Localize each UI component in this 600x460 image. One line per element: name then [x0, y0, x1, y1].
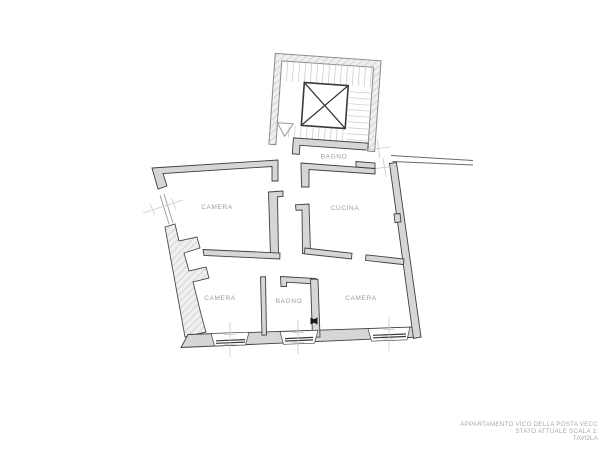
room-label-camera-bottom-right: CAMERA	[345, 295, 376, 302]
room-label-bagno-bottom: BAGNO	[276, 298, 302, 305]
wall-cucina-bottom-a	[304, 248, 352, 259]
room-label-cucina: CUCINA	[331, 205, 360, 212]
window-left-centerline	[143, 198, 183, 215]
wall-bagno-right	[311, 279, 321, 337]
wall-cucina-left	[296, 204, 311, 254]
interior-walls	[203, 162, 404, 338]
wall-bagno-left	[261, 277, 267, 336]
title-block: APPARTAMENTO VICO DELLA POSTA VECC STATO…	[460, 421, 598, 442]
wall-cucina-bottom-b	[366, 255, 405, 265]
room-label-bagno-top: BAGNO	[321, 154, 347, 161]
window-left	[143, 194, 183, 224]
stairwell	[268, 53, 381, 159]
exterior-walls	[152, 160, 421, 348]
title-line-state-scale: STATO ATTUALE SCALA 1:	[460, 428, 598, 435]
elevator-shaft-x-icon	[301, 83, 348, 129]
wall-top	[152, 160, 278, 189]
wall-camera-tl-right	[269, 191, 284, 254]
wall-right-jog	[394, 214, 401, 223]
wall-camera-tl-bottom	[203, 250, 280, 260]
title-line-project: APPARTAMENTO VICO DELLA POSTA VECC	[460, 421, 598, 428]
wall-left-hatched	[165, 224, 209, 337]
room-label-camera-top-left: CAMERA	[201, 204, 232, 211]
floor-plan-drawing: BAGNO CAMERA CUCINA CAMERA BAGNO CAMERA	[0, 0, 600, 460]
wall-right	[390, 163, 422, 339]
room-label-camera-bottom-left: CAMERA	[204, 295, 235, 302]
title-line-sheet: TAVOLA	[460, 435, 598, 442]
wall-right-extension	[391, 156, 473, 166]
stair-direction-triangle-icon	[277, 123, 294, 137]
wall-cucina-top-jog	[356, 162, 375, 169]
